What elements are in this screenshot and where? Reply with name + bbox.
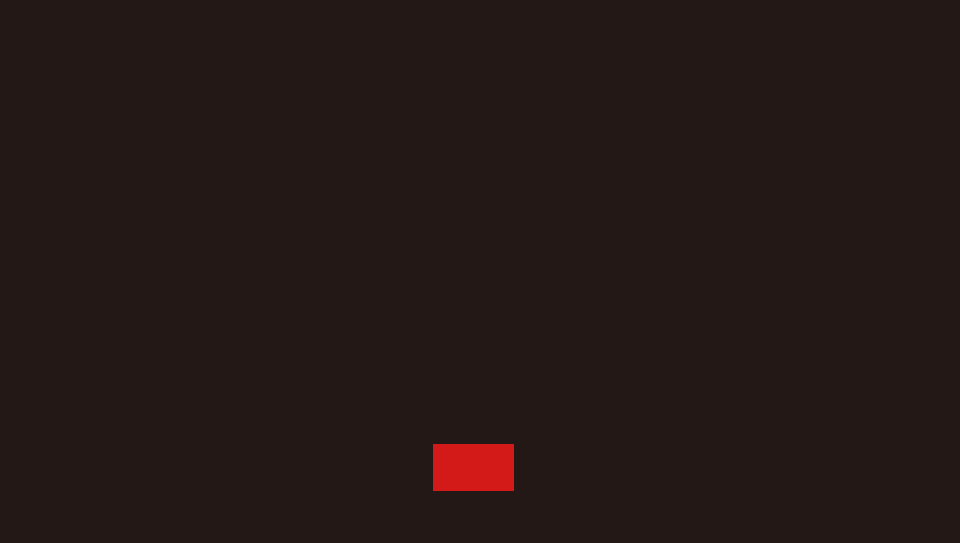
dark-screen-background xyxy=(0,0,960,543)
red-rectangle[interactable] xyxy=(433,444,514,491)
